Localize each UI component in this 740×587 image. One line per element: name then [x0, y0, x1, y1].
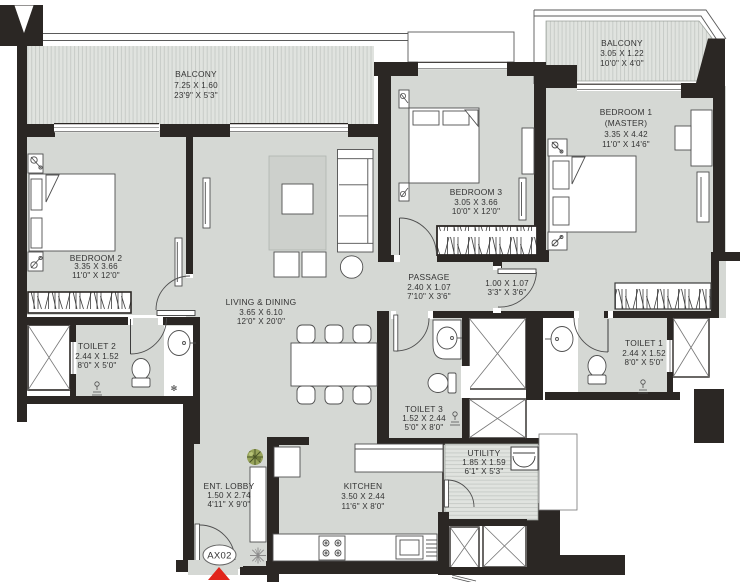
svg-text:TOILET 3: TOILET 3 — [405, 404, 443, 414]
svg-text:LIVING & DINING: LIVING & DINING — [226, 297, 297, 307]
svg-text:TOILET 2: TOILET 2 — [78, 341, 116, 351]
svg-text:12'0" X 20'0": 12'0" X 20'0" — [237, 317, 285, 326]
svg-text:(MASTER): (MASTER) — [605, 118, 647, 128]
svg-text:6'1" X 5'3": 6'1" X 5'3" — [465, 467, 504, 476]
svg-text:7.25 X 1.60: 7.25 X 1.60 — [174, 81, 218, 90]
svg-text:BALCONY: BALCONY — [601, 38, 643, 48]
svg-text:8'0" X 5'0": 8'0" X 5'0" — [625, 358, 664, 367]
svg-text:5'0" X 8'0": 5'0" X 8'0" — [405, 423, 444, 432]
svg-text:8'0" X 5'0": 8'0" X 5'0" — [78, 361, 117, 370]
svg-text:1.50 X 2.74: 1.50 X 2.74 — [207, 491, 251, 500]
svg-text:1.00 X 1.07: 1.00 X 1.07 — [485, 279, 529, 288]
svg-text:2.44 X 1.52: 2.44 X 1.52 — [622, 349, 666, 358]
svg-text:UTILITY: UTILITY — [468, 448, 501, 458]
svg-text:KITCHEN: KITCHEN — [344, 481, 383, 491]
svg-text:11'6" X 8'0": 11'6" X 8'0" — [341, 502, 384, 511]
svg-text:7'10" X 3'6": 7'10" X 3'6" — [407, 292, 451, 301]
svg-text:BEDROOM 3: BEDROOM 3 — [450, 187, 503, 197]
svg-text:3.35 X 4.42: 3.35 X 4.42 — [604, 130, 648, 139]
svg-text:3.05 X 1.22: 3.05 X 1.22 — [600, 49, 644, 58]
svg-text:11'0" X 14'6": 11'0" X 14'6" — [602, 140, 650, 149]
svg-text:1.52 X 2.44: 1.52 X 2.44 — [402, 414, 446, 423]
svg-text:✻: ✻ — [171, 384, 178, 393]
svg-text:2.44 X 1.52: 2.44 X 1.52 — [75, 352, 119, 361]
svg-text:3.65 X 6.10: 3.65 X 6.10 — [239, 308, 283, 317]
svg-text:AX02: AX02 — [207, 551, 231, 562]
svg-text:3.05 X 3.66: 3.05 X 3.66 — [454, 198, 498, 207]
svg-text:11'0" X 12'0": 11'0" X 12'0" — [72, 271, 120, 280]
svg-text:3.50 X 2.44: 3.50 X 2.44 — [341, 492, 385, 501]
svg-text:2.40 X 1.07: 2.40 X 1.07 — [407, 283, 451, 292]
svg-text:10'0" X 4'0": 10'0" X 4'0" — [600, 59, 644, 68]
svg-text:ENT. LOBBY: ENT. LOBBY — [204, 481, 255, 491]
svg-text:10'0" X 12'0": 10'0" X 12'0" — [452, 207, 500, 216]
svg-text:BALCONY: BALCONY — [175, 69, 217, 79]
svg-text:3.35 X 3.66: 3.35 X 3.66 — [74, 262, 118, 271]
svg-text:3'3" X 3'6": 3'3" X 3'6" — [488, 288, 527, 297]
svg-text:PASSAGE: PASSAGE — [408, 272, 449, 282]
svg-text:4'11" X 9'0": 4'11" X 9'0" — [207, 500, 250, 509]
svg-text:23'9" X 5'3": 23'9" X 5'3" — [174, 91, 218, 100]
svg-text:BEDROOM 1: BEDROOM 1 — [600, 107, 653, 117]
svg-text:TOILET 1: TOILET 1 — [625, 338, 663, 348]
svg-text:1.85 X 1.59: 1.85 X 1.59 — [462, 458, 506, 467]
